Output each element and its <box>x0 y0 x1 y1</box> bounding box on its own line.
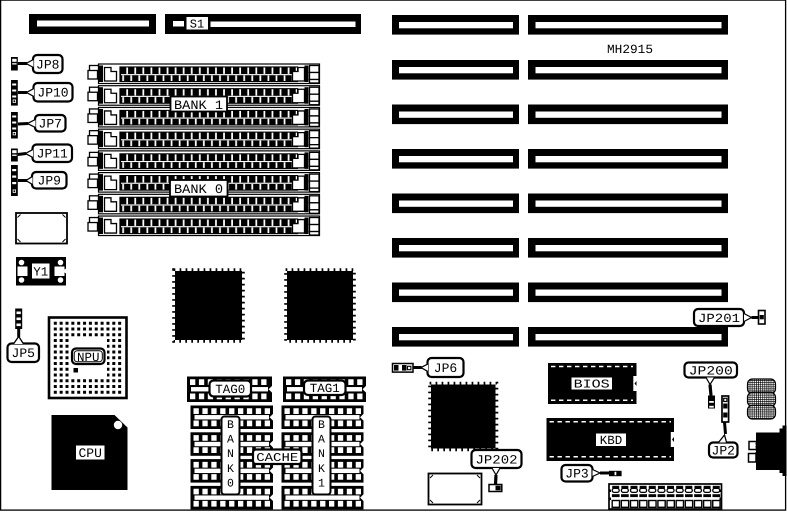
svg-text:K: K <box>318 463 325 476</box>
svg-text:JP202: JP202 <box>476 453 518 467</box>
svg-text:B: B <box>227 419 234 432</box>
svg-text:A: A <box>227 434 234 447</box>
svg-text:1: 1 <box>318 477 325 490</box>
svg-text:KBD: KBD <box>600 434 623 448</box>
svg-text:TAG0: TAG0 <box>215 383 245 397</box>
svg-text:JP6: JP6 <box>434 361 457 376</box>
svg-text:JP11: JP11 <box>37 147 68 162</box>
svg-text:BIOS: BIOS <box>574 378 610 392</box>
svg-text:JP3: JP3 <box>565 467 588 482</box>
svg-text:JP200: JP200 <box>689 364 733 378</box>
svg-text:JP7: JP7 <box>39 117 62 132</box>
svg-text:JP9: JP9 <box>38 174 61 189</box>
svg-text:MH2915: MH2915 <box>607 43 653 57</box>
svg-text:JP201: JP201 <box>698 312 740 326</box>
svg-text:S1: S1 <box>190 18 204 32</box>
svg-text:TAG1: TAG1 <box>310 382 340 396</box>
svg-text:CACHE: CACHE <box>256 451 298 465</box>
svg-text:JP2: JP2 <box>712 443 735 458</box>
svg-text:CPU: CPU <box>78 446 101 461</box>
svg-text:JP8: JP8 <box>36 57 59 72</box>
svg-text:BANK 1: BANK 1 <box>174 98 223 113</box>
svg-text:JP10: JP10 <box>37 86 68 101</box>
svg-text:N: N <box>318 448 325 461</box>
svg-text:K: K <box>227 463 234 476</box>
svg-text:NPU: NPU <box>77 351 100 365</box>
svg-text:BANK 0: BANK 0 <box>174 182 223 197</box>
svg-text:0: 0 <box>227 477 234 490</box>
svg-text:Y1: Y1 <box>33 266 48 280</box>
svg-text:A: A <box>318 434 325 447</box>
svg-text:N: N <box>227 448 234 461</box>
svg-text:JP5: JP5 <box>12 346 35 361</box>
svg-text:B: B <box>318 419 325 432</box>
